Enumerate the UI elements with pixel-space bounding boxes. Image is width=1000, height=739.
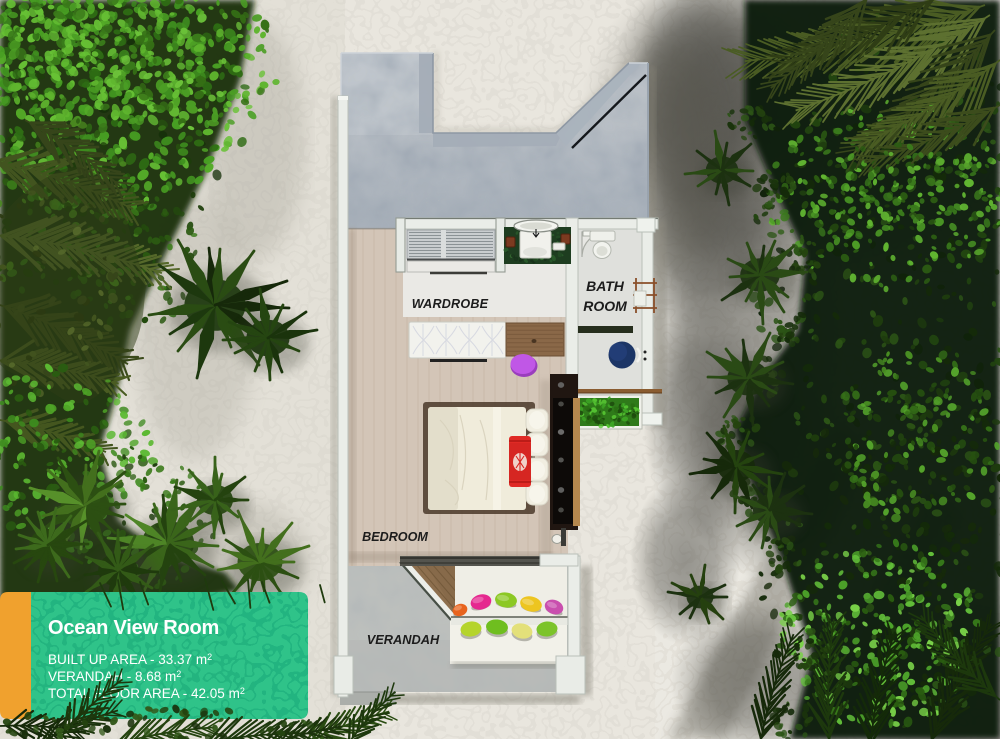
svg-text:Ocean View Room: Ocean View Room: [48, 617, 219, 639]
svg-text:BATH: BATH: [586, 278, 625, 294]
svg-text:VERANDAH: VERANDAH: [367, 632, 440, 647]
svg-text:BUILT UP AREA - 33.37 m2: BUILT UP AREA - 33.37 m2: [48, 652, 212, 667]
svg-text:TOTAL FLOOR AREA - 42.05 m2: TOTAL FLOOR AREA - 42.05 m2: [48, 686, 245, 701]
svg-text:ROOM: ROOM: [583, 298, 627, 314]
svg-text:BEDROOM: BEDROOM: [362, 530, 428, 544]
svg-text:WARDROBE: WARDROBE: [412, 297, 489, 311]
